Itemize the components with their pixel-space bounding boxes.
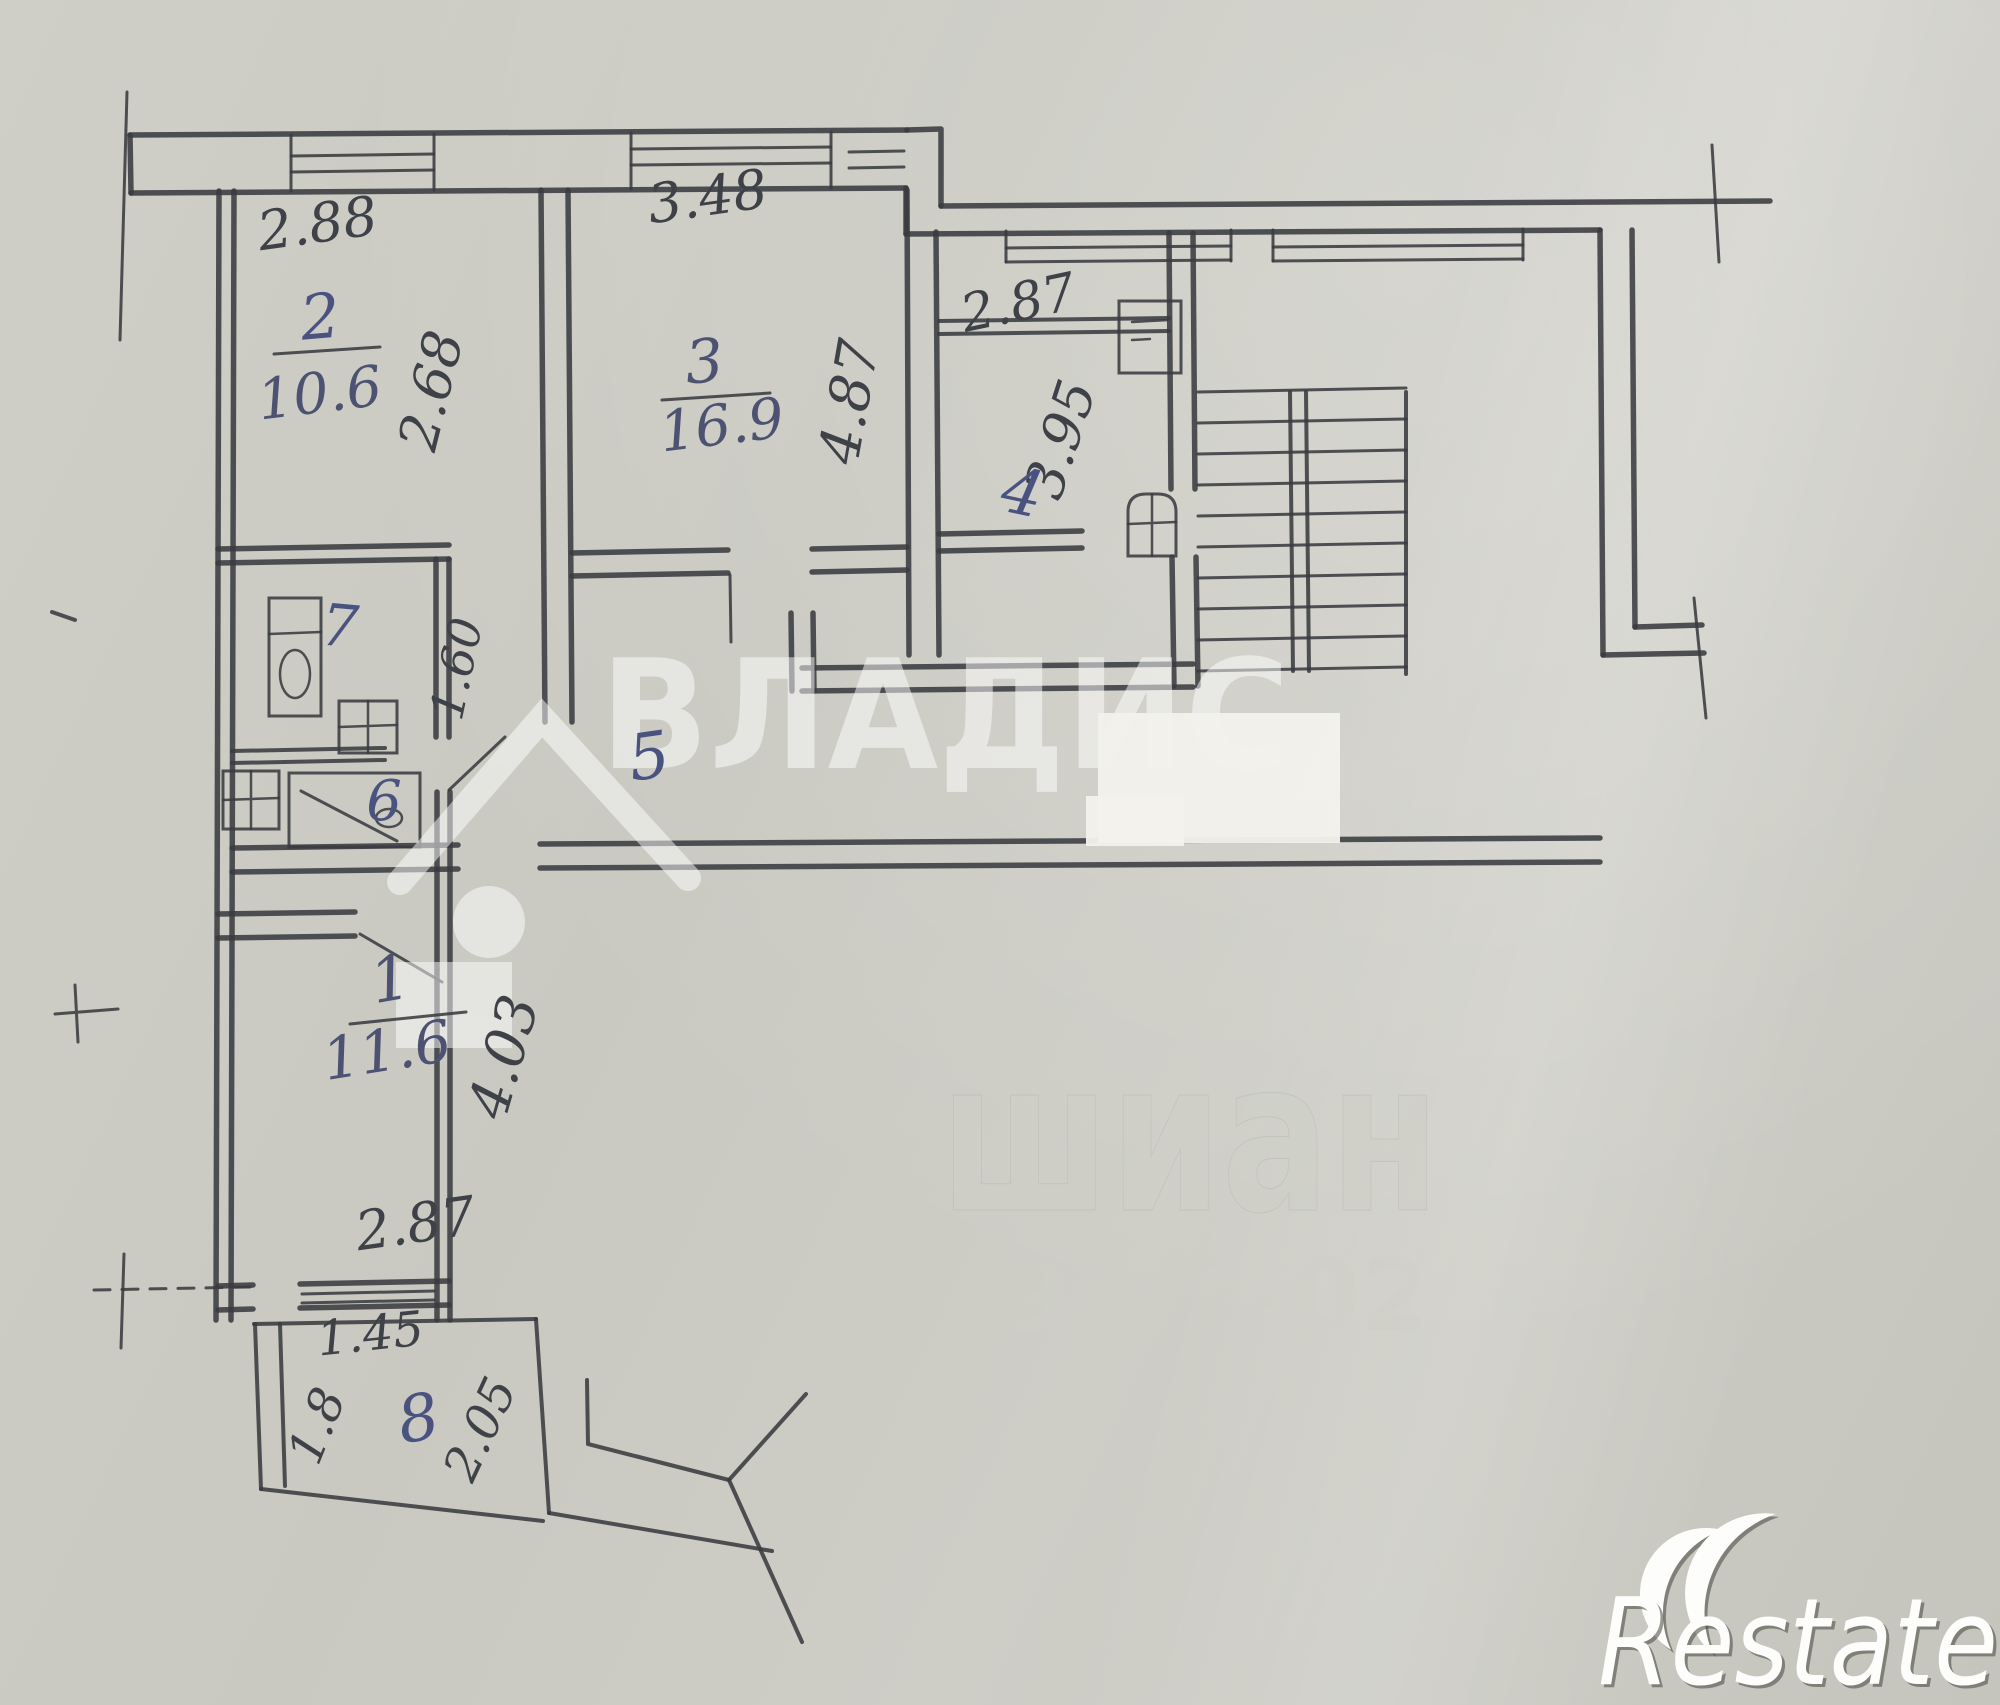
room-3-area: 16.9 <box>656 386 788 466</box>
dim-balcony-width: 1.45 <box>314 1301 426 1368</box>
room-1-number: 1 <box>365 939 417 1018</box>
room-8-number: 8 <box>392 1379 445 1459</box>
floor-plan-drawing: ВЛАДИС шиан 9-92-02 2.88 3.48 2.68 4.87 … <box>0 0 2000 1705</box>
dim-room3-width: 3.48 <box>644 157 772 236</box>
sink-icon <box>339 701 397 753</box>
faint-watermark: шиан 9-92-02 <box>940 1015 1440 1354</box>
scanned-floor-plan: ВЛАДИС шиан 9-92-02 2.88 3.48 2.68 4.87 … <box>0 0 2000 1705</box>
balcony-outline <box>255 1319 806 1642</box>
faint-watermark-digits: 9-92-02 <box>1000 1237 1430 1354</box>
room-7-number: 7 <box>318 591 361 662</box>
dim-room1-width: 2.87 <box>351 1184 480 1263</box>
dimension-line <box>94 1254 250 1348</box>
faint-watermark-text: шиан <box>940 1015 1440 1260</box>
room-2-area: 10.6 <box>254 354 386 434</box>
restate-logo: Restate <box>1598 1513 1998 1705</box>
dim-room2-depth: 2.68 <box>386 325 476 458</box>
dim-room3-depth: 4.87 <box>807 334 893 469</box>
room-3-number: 3 <box>682 326 726 399</box>
dim-balcony-left: 1.8 <box>277 1380 358 1472</box>
restate-logo-text: Restate <box>1598 1574 1998 1705</box>
dim-balcony-right: 2.05 <box>432 1369 528 1490</box>
dim-bath-passage: 1.60 <box>419 613 493 724</box>
entry-door-icon <box>1128 494 1176 556</box>
room-2-number: 2 <box>296 279 343 355</box>
room-6-number: 6 <box>366 769 402 834</box>
room-4-number: 4 <box>994 453 1050 534</box>
redaction-block <box>1086 713 1340 846</box>
toilet-icon <box>269 598 321 716</box>
dim-room2-width: 2.88 <box>253 184 382 263</box>
